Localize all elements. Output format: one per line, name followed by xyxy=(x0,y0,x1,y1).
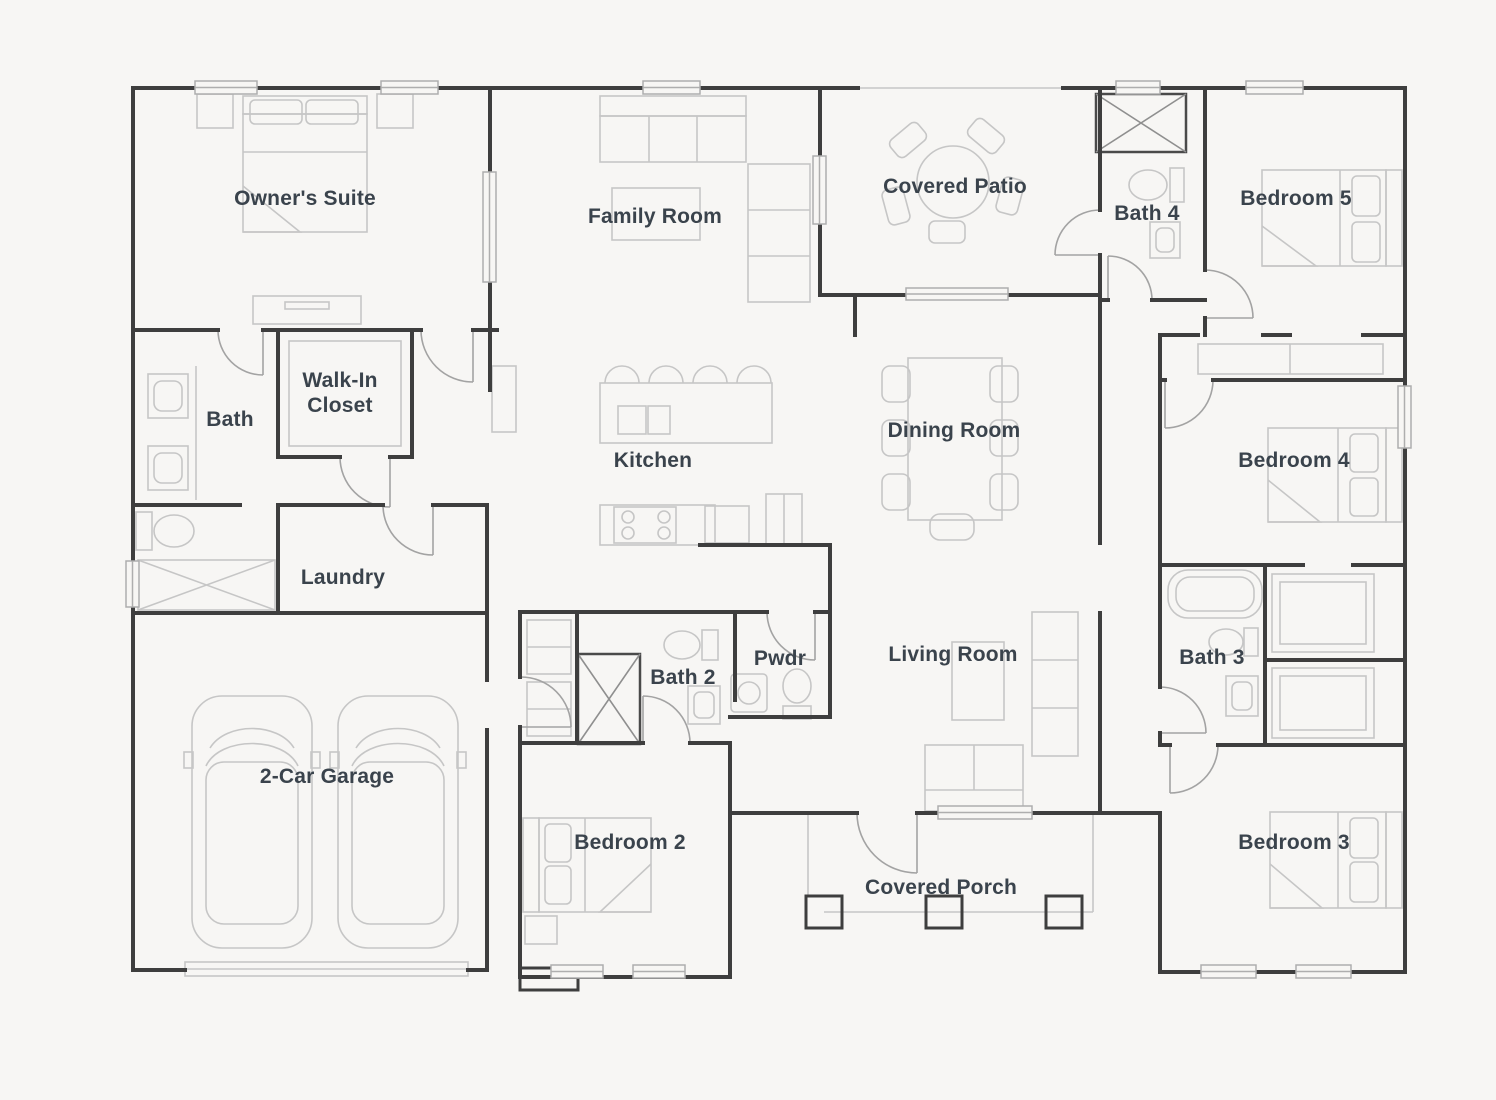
room-label-bath-4: Bath 4 xyxy=(1114,202,1179,226)
room-label-bath-2: Bath 2 xyxy=(650,666,715,690)
room-label-bedroom-2: Bedroom 2 xyxy=(574,831,686,855)
walls-layer xyxy=(133,88,1405,990)
room-label-bedroom-3: Bedroom 3 xyxy=(1238,831,1350,855)
owners-dresser-icon xyxy=(253,296,361,324)
bedroom3-bed-icon xyxy=(1270,812,1402,908)
room-label-garage: 2-Car Garage xyxy=(260,765,394,789)
room-label-kitchen: Kitchen xyxy=(614,449,692,473)
windows-layer xyxy=(126,81,1411,978)
room-label-bath-3: Bath 3 xyxy=(1179,646,1244,670)
bedroom4-bed-icon xyxy=(1268,428,1402,522)
room-label-covered-porch: Covered Porch xyxy=(865,876,1017,900)
room-label-living-room: Living Room xyxy=(888,643,1017,667)
bedroom5-closet-icon xyxy=(1198,344,1383,374)
kitchen-island-icon xyxy=(492,366,772,443)
floorplan-canvas: Owner's Suite Family Room Covered Patio … xyxy=(0,0,1496,1100)
room-label-bedroom-4: Bedroom 4 xyxy=(1238,449,1350,473)
room-label-dining-room: Dining Room xyxy=(888,419,1021,443)
wardrobe-icon xyxy=(1272,574,1374,738)
kitchen-counter-icon xyxy=(600,494,802,545)
bedroom5-bed-icon xyxy=(1262,170,1402,266)
car-icon xyxy=(330,696,466,948)
room-label-laundry: Laundry xyxy=(301,566,385,590)
owners-bed-icon xyxy=(197,94,413,232)
room-label-bath: Bath xyxy=(206,408,253,432)
floorplan-drawing xyxy=(0,0,1496,1100)
room-label-family-room: Family Room xyxy=(588,205,722,229)
furniture-layer xyxy=(136,88,1402,976)
room-label-owners-suite: Owner's Suite xyxy=(234,187,376,211)
room-label-bedroom-5: Bedroom 5 xyxy=(1240,187,1352,211)
bath3-fixtures-icon xyxy=(1168,570,1262,716)
sofa-icon xyxy=(600,96,810,302)
dining-table-icon xyxy=(882,358,1018,540)
room-label-pwdr: Pwdr xyxy=(754,647,806,671)
room-label-walk-in-closet: Walk-In Closet xyxy=(280,368,400,418)
room-label-covered-patio: Covered Patio xyxy=(883,175,1027,199)
owners-bath-fixtures-icon xyxy=(136,366,275,610)
powder-fixtures-icon xyxy=(731,669,811,719)
living-room-sofa-icon xyxy=(925,612,1078,811)
car-icon xyxy=(184,696,320,948)
